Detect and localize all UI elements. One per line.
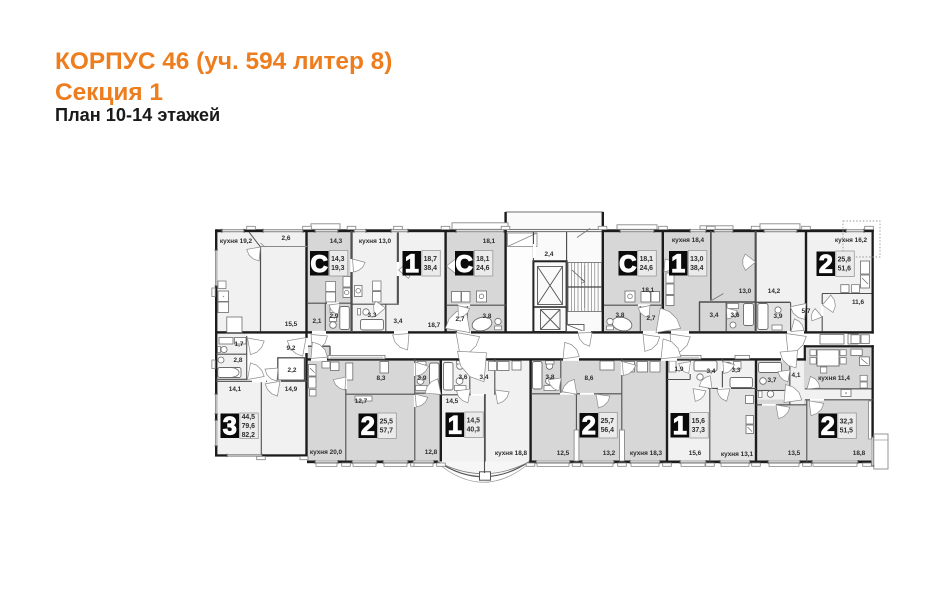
svg-text:12,7: 12,7: [355, 398, 368, 405]
svg-text:2: 2: [361, 413, 375, 441]
svg-text:18,8: 18,8: [853, 450, 866, 457]
svg-text:8,6: 8,6: [585, 375, 594, 382]
svg-text:15,5: 15,5: [285, 321, 298, 328]
svg-text:2,7: 2,7: [456, 316, 465, 323]
svg-text:1,7: 1,7: [235, 341, 244, 348]
svg-text:25,8: 25,8: [838, 257, 852, 264]
svg-text:19,3: 19,3: [331, 265, 345, 272]
svg-text:3,4: 3,4: [480, 374, 489, 381]
svg-text:32,3: 32,3: [840, 419, 854, 426]
svg-text:18,1: 18,1: [476, 256, 490, 263]
svg-text:кухня 18,8: кухня 18,8: [495, 450, 528, 457]
svg-text:3,4: 3,4: [394, 318, 403, 325]
svg-text:51,6: 51,6: [838, 266, 852, 273]
svg-text:51,5: 51,5: [840, 428, 854, 435]
svg-text:24,6: 24,6: [476, 265, 490, 272]
svg-text:14,9: 14,9: [285, 386, 298, 393]
svg-text:КОРПУС 46 (уч. 594 литер 8): КОРПУС 46 (уч. 594 литер 8): [55, 48, 392, 75]
svg-text:40,3: 40,3: [467, 427, 481, 434]
svg-text:5,7: 5,7: [802, 308, 811, 315]
svg-text:18,1: 18,1: [483, 238, 496, 245]
svg-text:14,5: 14,5: [446, 398, 459, 405]
svg-text:79,6: 79,6: [242, 423, 256, 430]
svg-text:2,2: 2,2: [288, 367, 297, 374]
svg-text:25,7: 25,7: [601, 418, 615, 425]
svg-text:2: 2: [819, 251, 833, 279]
svg-text:13,0: 13,0: [690, 256, 704, 263]
svg-text:кухня 20,0: кухня 20,0: [310, 449, 343, 456]
svg-text:1: 1: [448, 412, 462, 440]
svg-text:С: С: [456, 251, 473, 278]
svg-text:11,6: 11,6: [852, 299, 865, 306]
svg-text:3,6: 3,6: [731, 312, 740, 319]
svg-text:13,2: 13,2: [603, 450, 616, 457]
svg-text:2: 2: [821, 413, 835, 441]
svg-text:37,3: 37,3: [692, 427, 706, 434]
svg-text:3,8: 3,8: [546, 374, 555, 381]
svg-text:кухня 16,2: кухня 16,2: [835, 237, 868, 244]
svg-text:9,2: 9,2: [287, 345, 296, 352]
svg-text:14,3: 14,3: [330, 238, 343, 245]
svg-text:кухня 11,4: кухня 11,4: [818, 375, 850, 382]
svg-text:38,4: 38,4: [690, 265, 704, 272]
svg-text:3,9: 3,9: [418, 375, 427, 382]
svg-text:14,5: 14,5: [467, 418, 481, 425]
svg-text:кухня 18,4: кухня 18,4: [672, 237, 705, 244]
svg-text:18,7: 18,7: [424, 256, 438, 263]
svg-text:12,5: 12,5: [557, 450, 570, 457]
svg-text:14,2: 14,2: [768, 288, 781, 295]
svg-text:3,8: 3,8: [616, 312, 625, 319]
svg-text:2,4: 2,4: [545, 251, 554, 258]
svg-text:2: 2: [582, 412, 596, 440]
svg-text:3,3: 3,3: [368, 312, 377, 319]
svg-text:2,1: 2,1: [313, 318, 322, 325]
svg-text:2,9: 2,9: [330, 313, 339, 320]
svg-text:18,1: 18,1: [642, 287, 655, 294]
svg-text:2,7: 2,7: [647, 315, 656, 322]
svg-text:38,4: 38,4: [424, 265, 438, 272]
svg-text:57,7: 57,7: [380, 428, 394, 435]
svg-text:План 10-14 этажей: План 10-14 этажей: [55, 105, 220, 125]
svg-text:13,0: 13,0: [739, 288, 752, 295]
svg-text:С: С: [311, 251, 328, 278]
svg-text:3,6: 3,6: [459, 374, 468, 381]
svg-text:Секция 1: Секция 1: [55, 79, 163, 106]
svg-text:3,4: 3,4: [707, 368, 716, 375]
svg-text:3,3: 3,3: [732, 367, 741, 374]
svg-text:44,5: 44,5: [242, 414, 256, 421]
svg-text:С: С: [619, 251, 636, 278]
svg-text:8,3: 8,3: [377, 375, 386, 382]
svg-text:15,6: 15,6: [689, 450, 702, 457]
svg-text:56,4: 56,4: [601, 427, 615, 434]
svg-text:кухня 18,3: кухня 18,3: [630, 450, 663, 457]
svg-text:3: 3: [223, 413, 237, 441]
svg-text:4,1: 4,1: [792, 372, 801, 379]
svg-text:1: 1: [673, 412, 687, 440]
svg-text:13,5: 13,5: [788, 450, 801, 457]
svg-text:14,1: 14,1: [229, 386, 242, 393]
svg-text:3,9: 3,9: [774, 313, 783, 320]
svg-text:3,4: 3,4: [710, 312, 719, 319]
svg-text:2,8: 2,8: [234, 357, 243, 364]
svg-text:3,8: 3,8: [483, 313, 492, 320]
svg-text:18,1: 18,1: [640, 256, 654, 263]
svg-text:кухня 13,1: кухня 13,1: [721, 451, 754, 458]
svg-text:2,6: 2,6: [282, 235, 291, 242]
svg-text:кухня 19,2: кухня 19,2: [220, 238, 253, 245]
svg-text:1: 1: [405, 250, 419, 278]
svg-text:1: 1: [671, 250, 685, 278]
svg-text:кухня 13,0: кухня 13,0: [359, 238, 392, 245]
svg-text:25,5: 25,5: [380, 419, 394, 426]
svg-text:1,9: 1,9: [675, 366, 684, 373]
svg-text:18,7: 18,7: [428, 322, 441, 329]
svg-text:15,6: 15,6: [692, 418, 706, 425]
svg-text:24,6: 24,6: [640, 265, 654, 272]
svg-text:3,7: 3,7: [768, 377, 777, 384]
svg-text:82,2: 82,2: [242, 432, 256, 439]
svg-text:12,8: 12,8: [425, 449, 438, 456]
svg-text:14,3: 14,3: [331, 256, 345, 263]
